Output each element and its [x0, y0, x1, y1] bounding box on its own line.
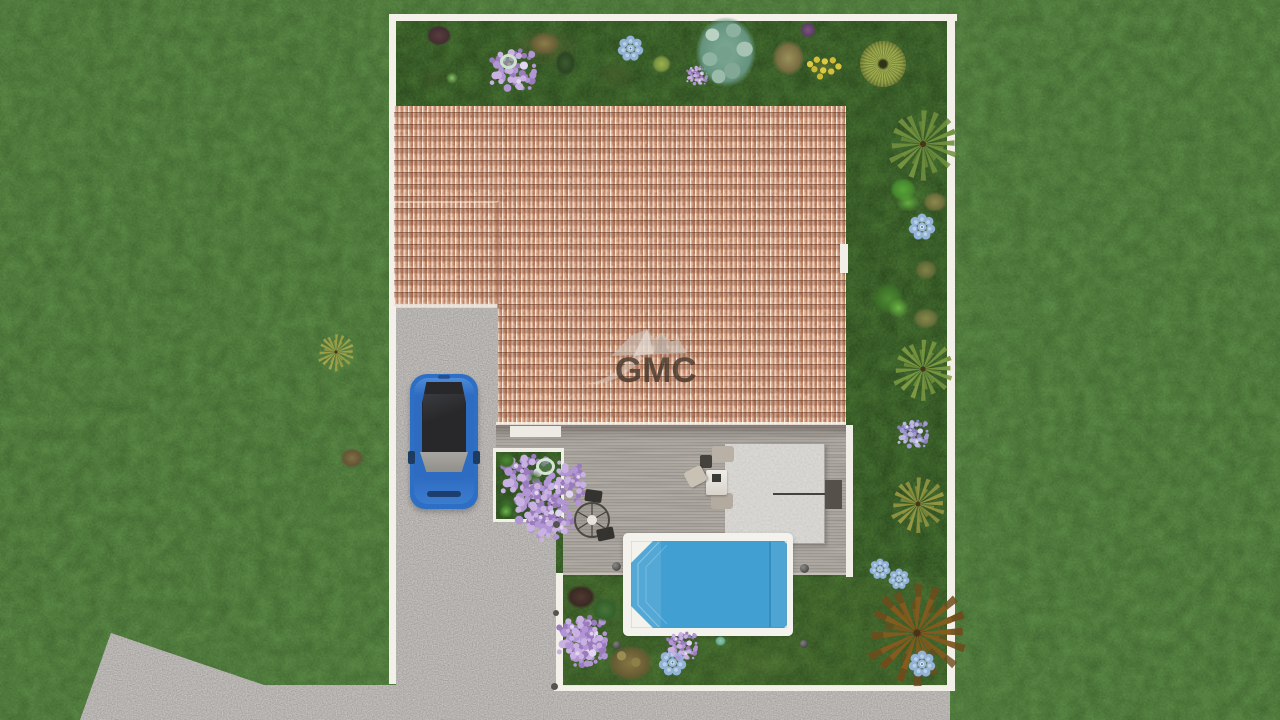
svg-text:GMC: GMC — [615, 351, 697, 390]
